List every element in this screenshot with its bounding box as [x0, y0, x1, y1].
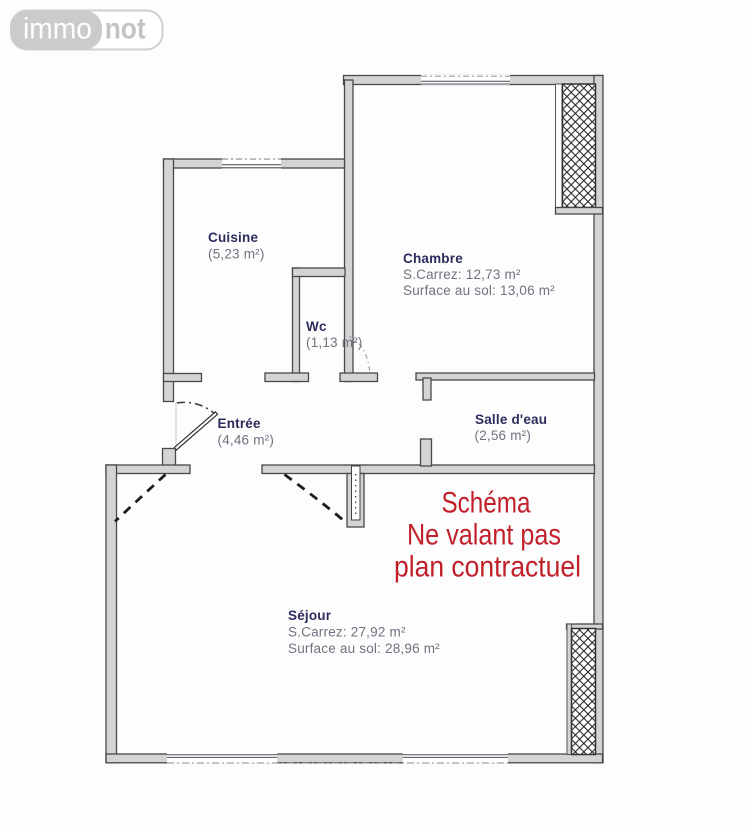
svg-text:Séjour: Séjour — [288, 608, 332, 623]
svg-text:immo: immo — [23, 12, 92, 45]
svg-text:S.Carrez: 27,92 m²: S.Carrez: 27,92 m² — [288, 625, 406, 640]
svg-text:not: not — [105, 12, 146, 45]
svg-text:(2,56 m²): (2,56 m²) — [475, 428, 532, 443]
svg-text:Entrée: Entrée — [218, 416, 262, 431]
svg-text:Cuisine: Cuisine — [208, 230, 258, 245]
svg-text:Salle d'eau: Salle d'eau — [475, 412, 547, 427]
svg-text:(5,23 m²): (5,23 m²) — [208, 247, 265, 262]
svg-text:Schéma: Schéma — [442, 487, 531, 520]
svg-text:Wc: Wc — [306, 319, 327, 334]
svg-text:S.Carrez: 12,73 m²: S.Carrez: 12,73 m² — [403, 267, 521, 282]
svg-text:Chambre: Chambre — [403, 251, 463, 266]
svg-text:Ne valant pas: Ne valant pas — [407, 519, 561, 552]
svg-text:Surface au sol: 28,96 m²: Surface au sol: 28,96 m² — [288, 641, 440, 656]
svg-text:plan contractuel: plan contractuel — [394, 551, 581, 584]
svg-text:(1,13 m²): (1,13 m²) — [306, 335, 363, 350]
svg-text:Surface au sol: 13,06 m²: Surface au sol: 13,06 m² — [403, 283, 555, 298]
svg-text:(4,46 m²): (4,46 m²) — [218, 433, 275, 448]
